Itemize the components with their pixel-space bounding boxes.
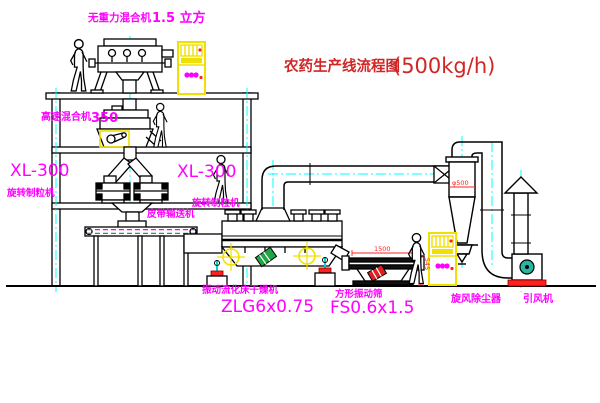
floor-beam-top	[46, 93, 258, 99]
diagram-title-capacity: (500kg/h)	[393, 54, 495, 78]
process-flow-drawing: 无重力混合机 1.5 立方 农药生产线流程图 (500kg/h) 高速混合机 3…	[0, 0, 600, 403]
spring-mount-1	[207, 260, 227, 286]
label-gravity-mixer-spec: 1.5 立方	[152, 10, 206, 26]
exhaust-duct	[262, 163, 452, 210]
granulator-left-machine	[96, 176, 130, 203]
granulator-discharge	[112, 203, 152, 228]
label-screen-model: FS0.6x1.5	[330, 298, 414, 318]
control-cabinet-upper	[178, 42, 205, 94]
dim-cyclone-inlet: φ500	[452, 179, 469, 187]
belt-conveyor-machine	[85, 227, 197, 286]
dim-screen-height: 545	[423, 258, 431, 270]
control-cabinet-lower	[429, 233, 456, 285]
label-granulator-left-model: XL-300	[10, 161, 69, 181]
cad-flow-diagram-canvas: 无重力混合机 1.5 立方 农药生产线流程图 (500kg/h) 高速混合机 3…	[0, 0, 600, 403]
label-gravity-mixer-name: 无重力混合机	[87, 11, 151, 24]
dim-screen-length: 1500	[374, 245, 391, 253]
induced-draft-fan-machine	[508, 254, 546, 286]
label-dryer-name: 振动流化床干燥机	[202, 284, 279, 296]
label-granulator-mid-name: 旋转制粒机	[191, 197, 240, 209]
label-granulator-mid-model: XL-300	[177, 162, 236, 182]
granulator-mid-machine	[134, 176, 168, 203]
exhaust-stack	[505, 177, 537, 254]
label-hs-mixer-spec: 350	[91, 111, 118, 126]
label-cyclone: 旋风除尘器	[450, 292, 502, 305]
label-fan: 引风机	[523, 292, 553, 305]
gravity-free-mixer	[89, 39, 173, 93]
label-dryer-model: ZLG6x0.75	[221, 297, 314, 317]
floor-beam-middle	[52, 147, 251, 153]
label-granulator-left-name: 旋转制粒机	[6, 187, 55, 199]
label-belt-conveyor: 皮带输送机	[146, 208, 195, 220]
label-hs-mixer-name: 高速混合机	[41, 110, 91, 123]
transfer-pipe	[123, 99, 136, 110]
person-top-floor	[71, 40, 87, 91]
diagram-title: 农药生产线流程图	[283, 57, 400, 75]
